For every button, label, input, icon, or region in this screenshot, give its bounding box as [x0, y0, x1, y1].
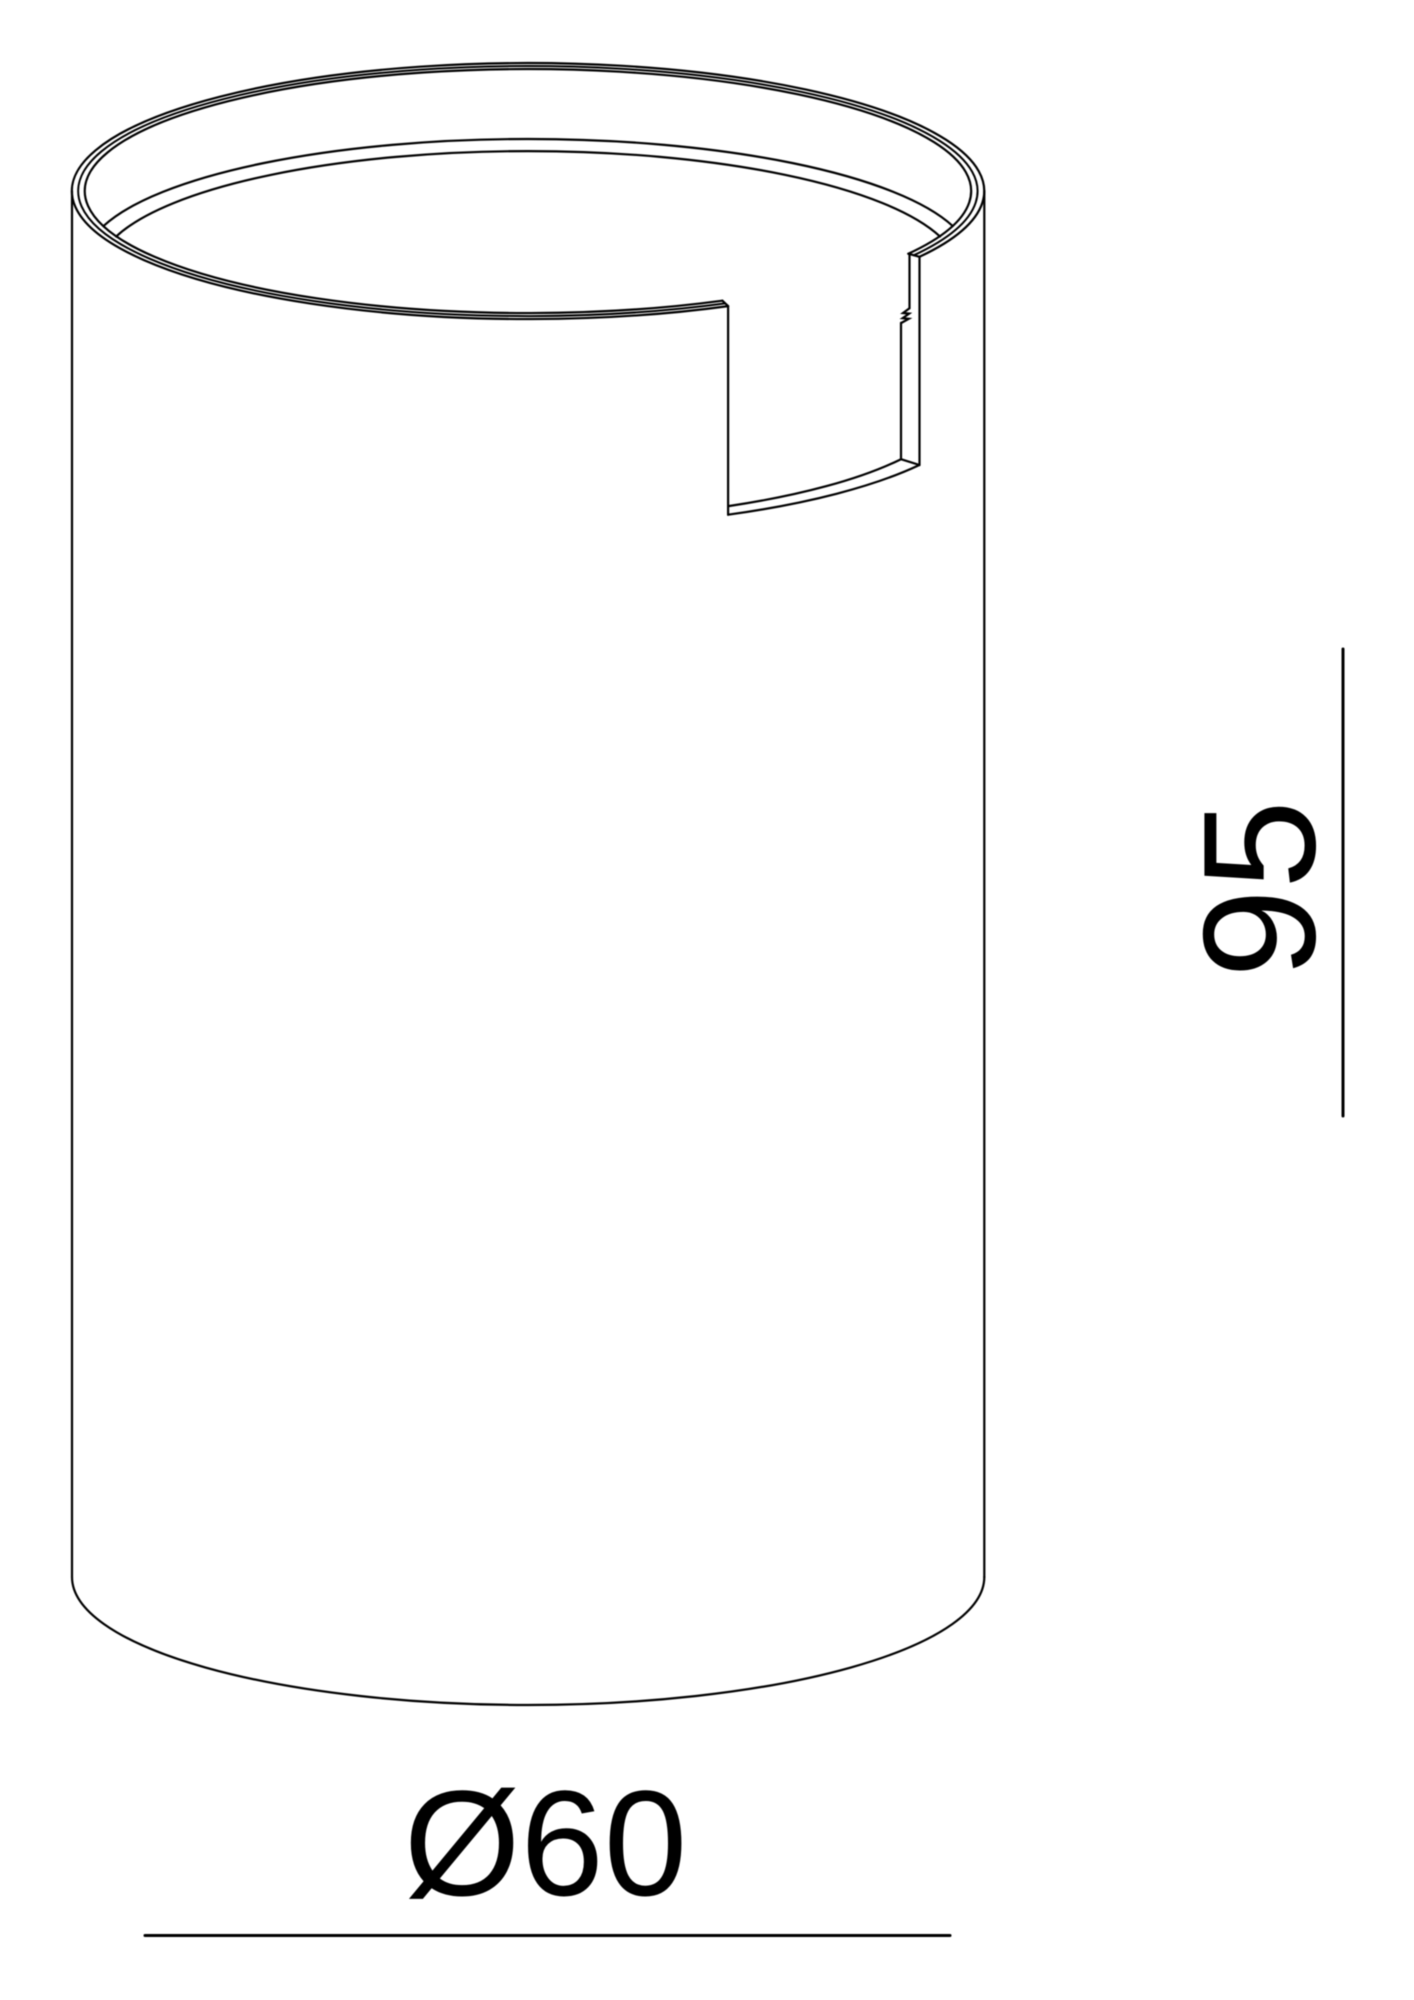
- svg-text:Ø60: Ø60: [404, 1759, 688, 1927]
- svg-text:95: 95: [1170, 800, 1349, 978]
